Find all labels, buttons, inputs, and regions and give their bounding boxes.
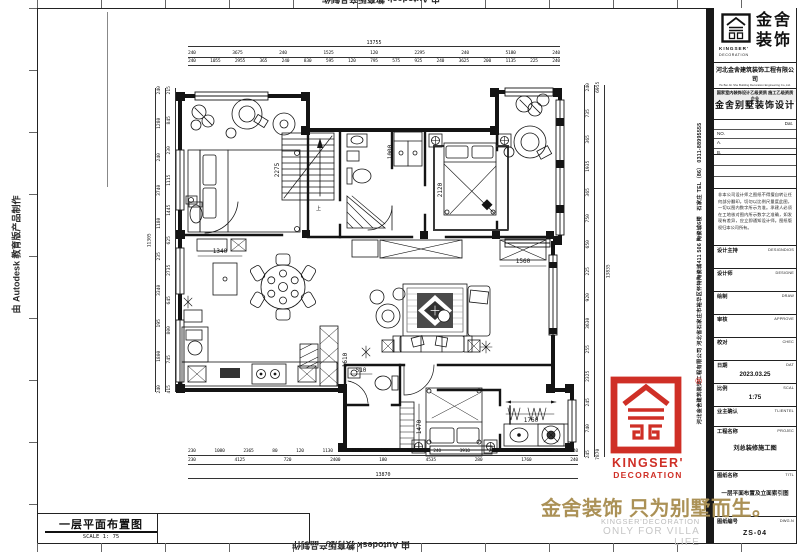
brand-name-en2: DECORATION — [719, 53, 749, 57]
dim-bottom-row1: 2301080236580120113011701005652403910280… — [188, 447, 578, 456]
bathroom1-fixtures — [347, 134, 392, 230]
dim-bath: 510 — [356, 367, 367, 374]
meta-dat: Dat. — [714, 120, 796, 130]
plan-scale: SCALE 1: 75 — [45, 534, 157, 540]
company-name-en: He Bei Jin She Building Decoration Engin… — [718, 83, 792, 87]
stamp-en2: DECORATION — [600, 470, 696, 480]
brand-name-en1: KINGSER' — [719, 46, 749, 51]
company-name: 河北金舍建筑装饰工程有限公司 — [714, 65, 796, 83]
dim-closet: 1000 — [387, 144, 394, 159]
field-project-name: 工程名称PROJEC刘总装修施工图 — [714, 427, 796, 471]
empty-rows — [714, 155, 796, 189]
slogan-en-line2: ONLY FOR VILLA LIFE — [600, 526, 700, 548]
plan-label-box: 一层平面布置图 SCALE 1: 75 — [37, 513, 310, 544]
meta-a: A. — [714, 139, 796, 149]
dining-furniture — [184, 239, 317, 322]
titleblock-black-bar — [706, 8, 714, 543]
sunroom-furniture — [504, 94, 552, 159]
field-client-confirm: 业主确认TLIENTEL — [714, 407, 796, 427]
windows — [176, 88, 576, 454]
bedroom1-furniture — [186, 99, 300, 233]
copyright-note: 非本公司设计师之图纸不得擅自转让任何部分翻印。切勿以比例尺量度此图，一切以图内数… — [714, 189, 796, 246]
kingser-stamp-icon — [610, 376, 682, 454]
slogan-en-line1: KINGSER'DECORATION — [600, 517, 700, 526]
outer-walls — [180, 92, 572, 450]
dim-laundry: 1760 — [524, 417, 539, 424]
field-scale: 比例SCAL1:75 — [714, 384, 796, 407]
dim-right-outer: 2407353651935365750650225920363025523252… — [584, 85, 594, 457]
dim-left-outer: 24012802403740118023533401951800240 — [156, 88, 166, 392]
meta-no: NO. — [714, 130, 796, 140]
plan-title-rule — [45, 531, 157, 533]
kitchen-furniture — [182, 326, 338, 386]
dim-island: 1340 — [213, 248, 228, 255]
field-drawing-number: 图纸编号DWG.NZS-04 — [714, 517, 796, 547]
field-draw: 绘制DRAW — [714, 292, 796, 315]
drawing-sheet: 由 Autodesk 教育版产品制作 由 Autodesk 教育版产品制作 由 … — [0, 0, 800, 559]
dim-stairs: 2275 — [274, 162, 281, 177]
meta-rows: Dat. NO. A. B. — [714, 120, 796, 155]
dim-wardrobe: 1470 — [416, 419, 423, 434]
dim-bottom-total: 13870 — [188, 470, 578, 479]
dim-left-inner: 215845230111514456252735645800745415 — [166, 88, 176, 392]
dim-top-row2: 2401055295536524083059512079557592524036… — [188, 57, 560, 66]
field-date: 日期DAT2023.03.25 — [714, 361, 796, 384]
closet-1000 — [394, 132, 422, 166]
dim-cabinet: 1610 — [342, 352, 349, 367]
bedroom2-furniture — [429, 134, 511, 230]
stamp-en1: KINGSER' — [600, 456, 696, 470]
plan-title: 一层平面布置图 — [45, 516, 157, 532]
kingser-logo-icon — [721, 13, 751, 43]
dim-bottom-row2: 2304125720240018045352801760240 — [188, 456, 578, 465]
registered-mark: ® — [695, 376, 702, 386]
brand-header: 金舍装饰 KINGSER' DECORATION — [714, 8, 796, 63]
title-block: 金舍装饰 KINGSER' DECORATION 河北金舍建筑装饰工程有限公司 … — [714, 8, 797, 543]
stairs-up-label: 上 — [316, 205, 321, 212]
brand-name-cn: 金舍装饰 — [756, 11, 792, 50]
kingser-stamp: ® KINGSER' DECORATION — [598, 376, 702, 484]
dim-left-total: 11305 — [146, 88, 156, 392]
field-design-director: 设计主持DESIGNDIOS — [714, 246, 796, 269]
field-designer: 设计师DESIGNE — [714, 269, 796, 292]
field-approve: 审核APPROVE — [714, 315, 796, 338]
dim-tv: 1560 — [516, 258, 531, 265]
dim-top-total: 13755 — [188, 38, 560, 47]
company-block: 河北金舍建筑装饰工程有限公司 He Bei Jin She Building D… — [714, 63, 796, 89]
slogan-en: KINGSER'DECORATION ONLY FOR VILLA LIFE — [600, 517, 700, 548]
dim-bed2: 2120 — [437, 182, 444, 197]
field-check: 校对CHEC — [714, 338, 796, 361]
